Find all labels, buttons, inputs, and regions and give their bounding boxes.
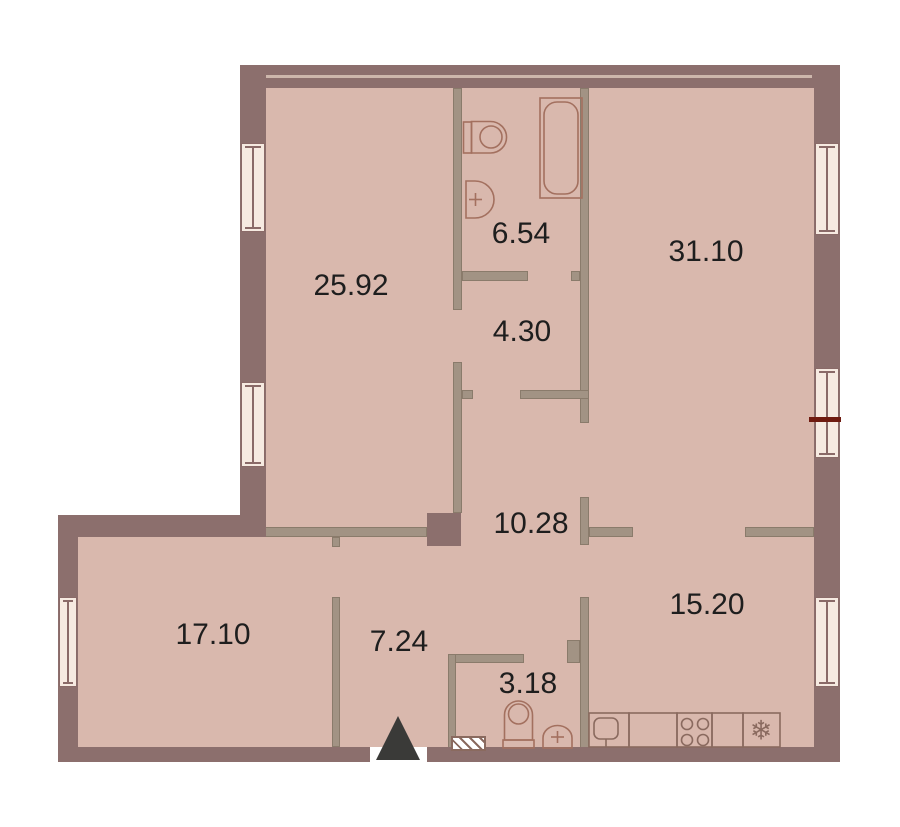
room-label-3-18: 3.18 <box>499 667 557 701</box>
room-label-6-54: 6.54 <box>492 217 550 251</box>
washbasin-icon <box>543 725 572 748</box>
vent-shaft <box>451 736 486 751</box>
floor-plan: ❄ 25.92 6.54 31.10 4.30 10.28 15.20 17.1… <box>0 0 900 827</box>
room-label-4-30: 4.30 <box>493 315 551 349</box>
room-label-25-92: 25.92 <box>313 269 388 303</box>
fixtures-layer <box>0 0 900 827</box>
room-label-31-10: 31.10 <box>668 235 743 269</box>
room-label-17-10: 17.10 <box>175 618 250 652</box>
entrance-arrow-icon <box>376 716 420 760</box>
toilet-icon <box>503 701 534 748</box>
stove-icon <box>682 719 709 746</box>
washbasin-icon <box>466 181 494 218</box>
room-label-7-24: 7.24 <box>370 625 428 659</box>
fridge-snowflake-icon: ❄ <box>750 718 773 745</box>
kitchen-sink-icon <box>594 718 618 747</box>
room-label-10-28: 10.28 <box>493 507 568 541</box>
toilet-icon <box>464 122 507 154</box>
room-label-15-20: 15.20 <box>669 588 744 622</box>
bathtub-icon <box>540 98 582 198</box>
